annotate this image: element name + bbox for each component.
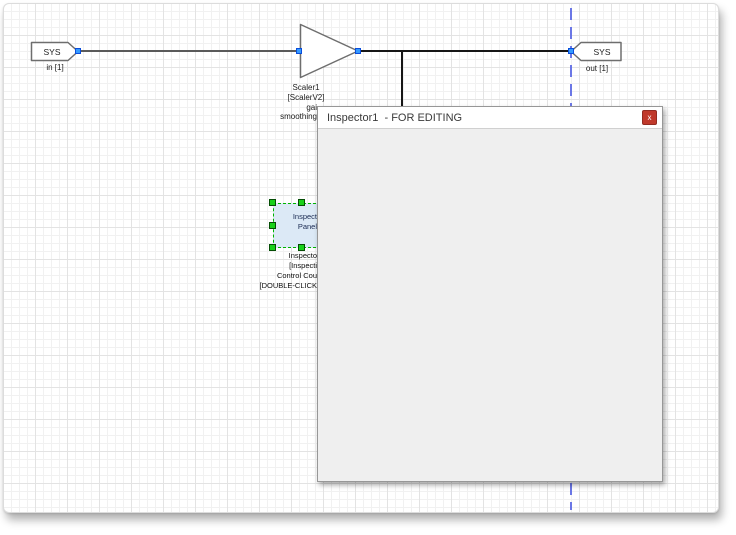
selection-handle-top-mid[interactable]: [298, 199, 305, 206]
inspector-panel-annotations: Inspecto [Inspecti Control Cou [DOUBLE-C…: [242, 251, 317, 291]
selection-handle-bottom-left[interactable]: [269, 244, 276, 251]
sys-input-block[interactable]: SYS: [30, 41, 80, 62]
scaler-param-label-2: smoothing: [260, 112, 317, 122]
port-sys-in-output[interactable]: [75, 48, 81, 54]
sys-output-block[interactable]: SYS: [570, 41, 624, 62]
svg-text:SYS: SYS: [43, 47, 60, 57]
annotation-line: [DOUBLE-CLICK: [242, 281, 317, 291]
wire-branch-down[interactable]: [401, 51, 403, 107]
svg-text:SYS: SYS: [593, 47, 610, 57]
scaler-model-label: [ScalerV2]: [270, 93, 342, 103]
annotation-line: Inspecto: [242, 251, 317, 261]
annotation-line: [Inspecti: [242, 261, 317, 271]
inspector-panel-line1: Inspect: [267, 212, 317, 222]
scaler-name-label: Scaler1: [270, 83, 342, 93]
port-scaler-input[interactable]: [296, 48, 302, 54]
selection-handle-mid-left[interactable]: [269, 222, 276, 229]
selection-handle-bottom-mid[interactable]: [298, 244, 305, 251]
inspector-window-content: [318, 130, 662, 481]
annotation-line: Control Cou: [242, 271, 317, 281]
inspector-window-titlebar[interactable]: Inspector1 - FOR EDITING x: [318, 107, 662, 129]
sys-output-sublabel: out [1]: [570, 64, 624, 74]
close-button[interactable]: x: [642, 110, 657, 125]
wire-in-to-scaler[interactable]: [76, 50, 300, 52]
inspector-window-title: Inspector1 - FOR EDITING: [327, 107, 462, 129]
scaler-block[interactable]: [299, 23, 361, 80]
inspector-window: Inspector1 - FOR EDITING x: [317, 106, 663, 482]
sys-input-sublabel: in [1]: [30, 63, 80, 73]
port-scaler-output[interactable]: [355, 48, 361, 54]
schematic-canvas[interactable]: SYS in [1] Scaler1 [ScalerV2] gai smooth…: [3, 3, 719, 513]
selection-handle-top-left[interactable]: [269, 199, 276, 206]
wire-scaler-to-out[interactable]: [357, 50, 573, 52]
port-sys-out-input[interactable]: [568, 48, 574, 54]
